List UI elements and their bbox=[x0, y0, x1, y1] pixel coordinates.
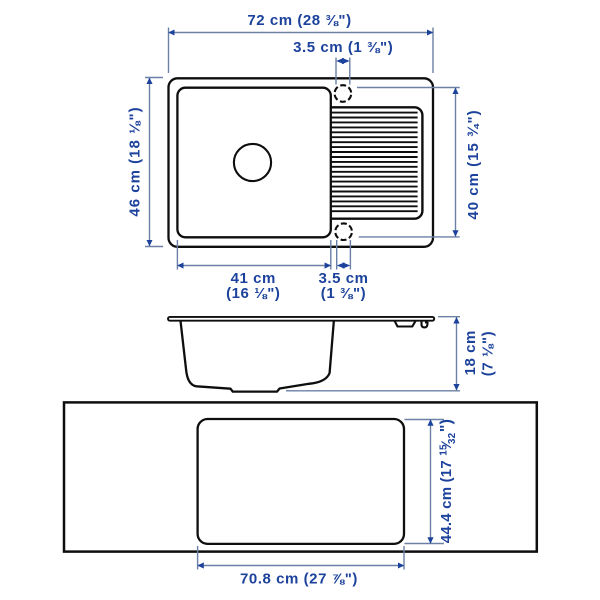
svg-text:70.8 cm (27 ⅞"): 70.8 cm (27 ⅞") bbox=[240, 571, 358, 588]
svg-text:18 cm: 18 cm bbox=[462, 330, 479, 375]
svg-text:3.5 cm (1 ⅜"): 3.5 cm (1 ⅜") bbox=[293, 39, 393, 56]
svg-text:(1 ⅜"): (1 ⅜") bbox=[321, 285, 366, 302]
svg-text:40 cm (15 ¾"): 40 cm (15 ¾") bbox=[465, 109, 482, 219]
svg-text:(16 ⅛"): (16 ⅛") bbox=[226, 285, 280, 302]
svg-text:46 cm (18 ⅛"): 46 cm (18 ⅛") bbox=[127, 106, 144, 216]
svg-text:72 cm (28 ⅜"): 72 cm (28 ⅜") bbox=[247, 12, 351, 29]
svg-text:(7 ⅛"): (7 ⅛") bbox=[480, 331, 497, 376]
